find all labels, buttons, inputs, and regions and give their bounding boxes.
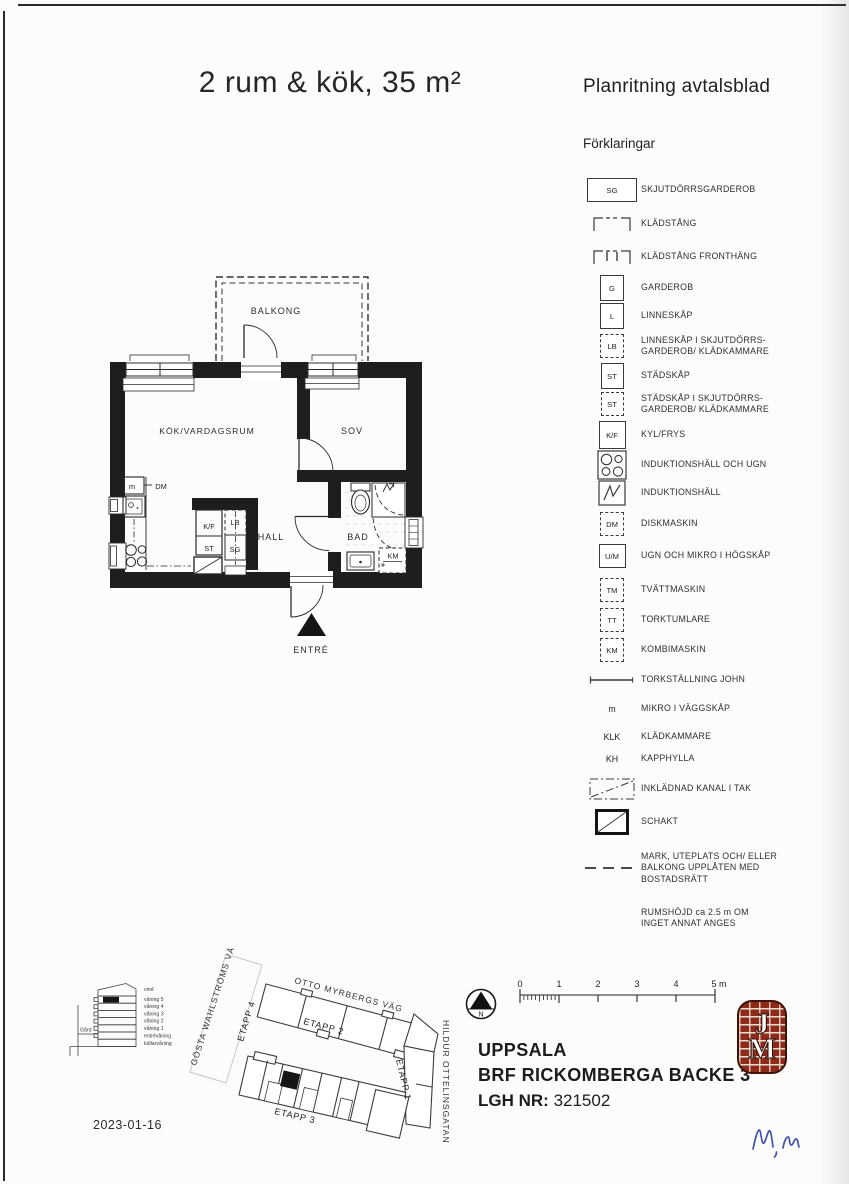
hob-oven-icon bbox=[597, 450, 627, 480]
corner-building bbox=[404, 1014, 438, 1052]
apartment-title: 2 rum & kök, 35 m² bbox=[170, 66, 490, 100]
scale-3: 3 bbox=[634, 979, 639, 989]
tm-symbol: TM bbox=[600, 578, 624, 602]
project-name: BRF RICKOMBERGA BACKE 3 bbox=[478, 1063, 751, 1088]
jm-logo: J M bbox=[737, 1000, 787, 1074]
dishwasher-label: DM bbox=[155, 482, 167, 491]
um-symbol: U/M bbox=[599, 544, 626, 568]
floor-label-5: våning 5 bbox=[144, 996, 164, 1003]
legend-row-ceiling-duct: INKLÄDNAD KANAL I TAK bbox=[583, 776, 849, 802]
legend-row-linen-in-wardrobe: LB LINNESKÅP I SKJUTDÖRRS- GARDEROB/ KLÄ… bbox=[583, 333, 849, 359]
project-city: UPPSALA bbox=[478, 1038, 751, 1063]
legend-row-dishwasher: DM DISKMASKIN bbox=[583, 511, 849, 537]
legend-row-cleaning-in-wardrobe: ST STÄDSKÅP I SKJUTDÖRRS- GARDEROB/ KLÄD… bbox=[583, 391, 849, 417]
document-date: 2023-01-16 bbox=[93, 1118, 162, 1132]
clothes-rail-icon bbox=[591, 215, 633, 233]
etapp4-label: ETAPP 4 bbox=[235, 1000, 257, 1043]
legend-row-sliding-wardrobe: SG SKJUTDÖRRSGARDEROB bbox=[583, 177, 849, 203]
legend-row-linen-cabinet: L LINNESKÅP bbox=[583, 303, 849, 329]
jm-logo-letter-m: M bbox=[748, 1037, 775, 1062]
legend-row-clothes-rail: KLÄDSTÅNG bbox=[583, 211, 849, 237]
legend-row-wardrobe: G GARDEROB bbox=[583, 275, 849, 301]
scale-0: 0 bbox=[517, 979, 522, 989]
legend-row-hob-and-oven: INDUKTIONSHÄLL OCH UGN bbox=[583, 450, 849, 480]
ceiling-duct-icon bbox=[588, 777, 636, 801]
kf-symbol: K/F bbox=[599, 421, 626, 449]
sg-symbol: SG bbox=[587, 178, 637, 202]
living-room-label: KÖK/VARDAGSRUM bbox=[159, 426, 255, 436]
floor-label-4: våning 4 bbox=[144, 1003, 164, 1010]
floor-label-1: våning 1 bbox=[144, 1025, 164, 1032]
scale-4: 4 bbox=[673, 979, 678, 989]
klk-symbol: KLK bbox=[604, 732, 621, 742]
document-type-heading: Planritning avtalsblad bbox=[583, 76, 770, 98]
linen-label: LB bbox=[230, 518, 239, 527]
legend-row-washing-machine: TM TVÄTTMASKIN bbox=[583, 577, 849, 603]
l-symbol: L bbox=[600, 303, 624, 329]
micro-label: m bbox=[129, 482, 135, 491]
etapp3-building bbox=[238, 1050, 411, 1138]
legend-row-micro-wall-cabinet: m MIKRO I VÄGGSKÅP bbox=[583, 696, 849, 722]
cleaning-label: ST bbox=[204, 544, 214, 553]
legend-row-dryer: TT TORKTUMLARE bbox=[583, 607, 849, 633]
tt-symbol: TT bbox=[600, 608, 624, 632]
site-plan: ETAPP 2 ETAPP 3 ETAPP 4 bbox=[188, 948, 451, 1144]
legend-row-shaft: SCHAKT bbox=[583, 808, 849, 836]
floor-label-2: våning 2 bbox=[144, 1018, 164, 1025]
balcony-label: BALKONG bbox=[251, 306, 302, 316]
project-info: UPPSALA BRF RICKOMBERGA BACKE 3 LGH NR: … bbox=[478, 1038, 751, 1113]
dm-symbol: DM bbox=[600, 512, 624, 536]
legend-heading: Förklaringar bbox=[583, 136, 655, 151]
yard-label: Gård bbox=[80, 1027, 92, 1034]
apartment-number-row: LGH NR: 321502 bbox=[478, 1088, 751, 1113]
wardrobe-label: SG bbox=[230, 545, 241, 554]
scale-1: 1 bbox=[556, 979, 561, 989]
tenure-boundary-icon bbox=[584, 864, 640, 872]
bedroom-label: SOV bbox=[341, 426, 363, 436]
bathroom-label: BAD bbox=[347, 532, 369, 542]
building-elevation bbox=[70, 984, 136, 1057]
m-symbol: m bbox=[608, 704, 615, 714]
clothes-rail-front-icon bbox=[591, 248, 633, 266]
legend-row-tenure-boundary: MARK, UTEPLATS OCH/ ELLER BALKONG UPPLÅT… bbox=[583, 851, 849, 885]
entrance-arrow bbox=[297, 613, 326, 636]
shaft-icon bbox=[594, 808, 630, 836]
highlighted-floor bbox=[103, 997, 119, 1003]
document-page: 2 rum & kök, 35 m² Planritning avtalsbla… bbox=[0, 0, 849, 1184]
legend-row-drying-rack: TORKSTÄLLNING JOHN bbox=[583, 667, 849, 693]
legend-row-fridge-freezer: K/F KYL/FRYS bbox=[583, 421, 849, 449]
km-symbol: KM bbox=[600, 638, 624, 662]
combi-label: KM bbox=[387, 552, 398, 561]
compass-n-label: N bbox=[478, 1012, 483, 1019]
scale-2: 2 bbox=[595, 979, 600, 989]
floor-label-3: våning 3 bbox=[144, 1010, 164, 1017]
floor-label-kallare: källarvåning bbox=[144, 1040, 172, 1047]
scale-5m: 5 m bbox=[711, 979, 726, 989]
scale-bar bbox=[520, 989, 715, 1003]
legend-row-clothes-rail-front: KLÄDSTÅNG FRONTHÄNG bbox=[583, 244, 849, 270]
drying-rack-icon bbox=[588, 675, 636, 685]
legend-row-coat-shelf: KH KAPPHYLLA bbox=[583, 746, 849, 772]
legend-row-oven-micro: U/M UGN OCH MIKRO I HÖGSKÅP bbox=[583, 543, 849, 569]
lb-symbol: LB bbox=[600, 334, 624, 358]
legend-row-induction-hob: INDUKTIONSHÄLL bbox=[583, 480, 849, 506]
legend-row-room-height-note: RUMSHÖJD ca 2.5 m OM INGET ANNAT ANGES bbox=[583, 905, 849, 931]
street-hildur-ottelins: HILDUR OTTELINSGATAN bbox=[441, 1020, 451, 1144]
compass: N bbox=[467, 990, 496, 1019]
scan-edge-top bbox=[18, 4, 846, 6]
floor-label-entre: entrévåning bbox=[144, 1033, 171, 1040]
balcony bbox=[216, 277, 368, 361]
st-dashed-symbol: ST bbox=[601, 392, 624, 416]
apartment-number-label: LGH NR: bbox=[478, 1091, 549, 1110]
apartment-walls bbox=[110, 362, 422, 588]
induction-hob-icon bbox=[598, 480, 626, 506]
hall-label: HALL bbox=[258, 532, 285, 542]
signature bbox=[753, 1130, 799, 1157]
legend-row-cleaning-cabinet: ST STÄDSKÅP bbox=[583, 363, 849, 389]
st-symbol: ST bbox=[601, 363, 624, 389]
g-symbol: G bbox=[600, 275, 624, 301]
street-gosta-wahlstroms: GÖSTA WAHLSTRÖMS VÄG bbox=[188, 948, 238, 1067]
fridge-label: K/F bbox=[203, 522, 215, 531]
legend-row-combi-machine: KM KOMBIMASKIN bbox=[583, 637, 849, 663]
apartment-number-value: 321502 bbox=[554, 1091, 611, 1110]
entrance-label: ENTRÉ bbox=[293, 645, 329, 655]
floor-label-vind: vind bbox=[144, 987, 154, 993]
kh-symbol: KH bbox=[606, 754, 618, 764]
floor-plan: BALKONG bbox=[0, 255, 460, 675]
